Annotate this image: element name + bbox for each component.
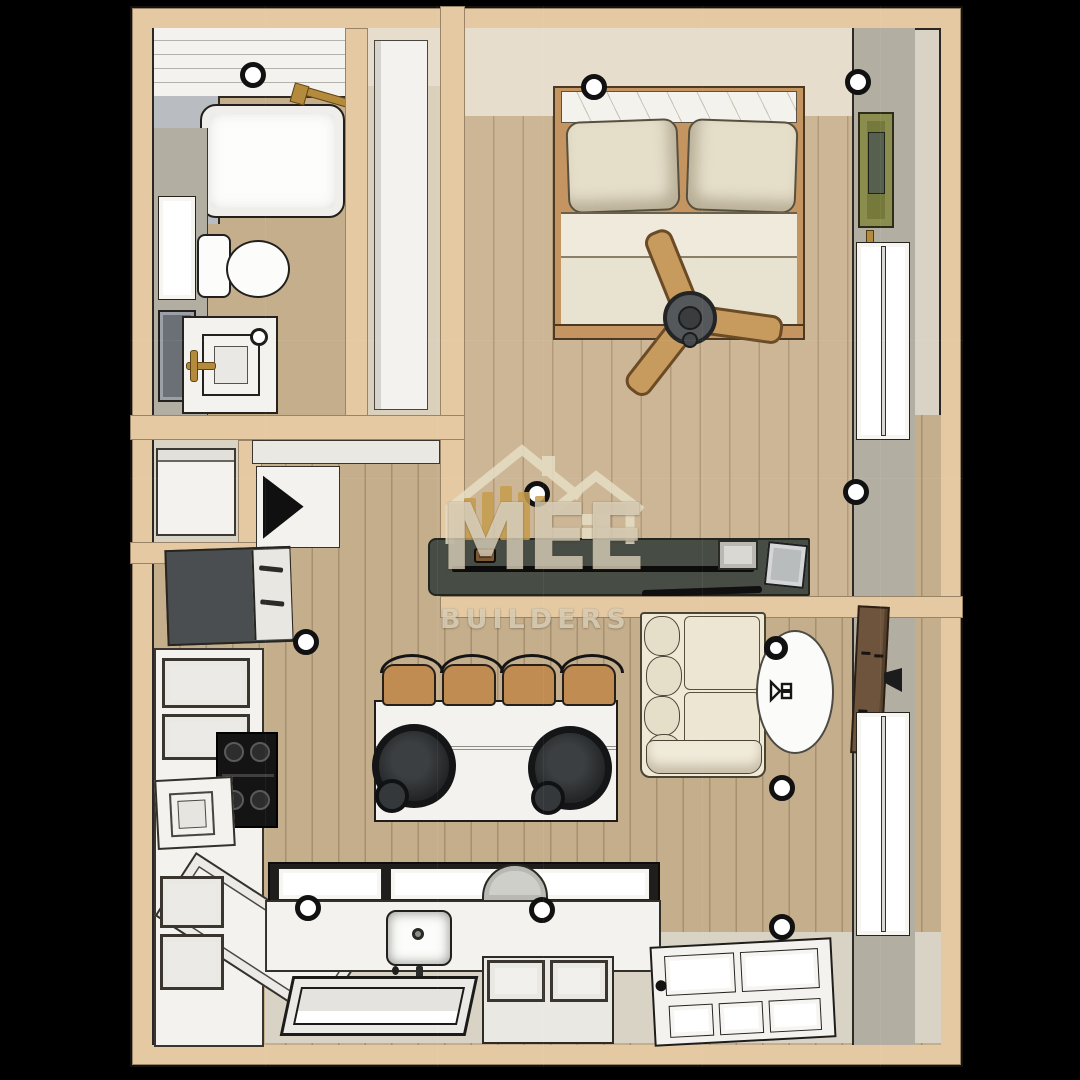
- gold-faucet-handle: [190, 350, 198, 382]
- console-bin: [764, 541, 808, 589]
- recessed-light: [769, 914, 795, 940]
- sofa-bolster-3: [644, 696, 680, 736]
- bedroom-east-window-divider: [881, 246, 886, 436]
- door-pane-bottom-3: [768, 998, 822, 1033]
- render-guide-line: [130, 340, 963, 341]
- bar-stool-2: [442, 664, 496, 706]
- soap-dispenser: [392, 966, 399, 975]
- recessed-light: [293, 629, 319, 655]
- bar-stool-3: [502, 664, 556, 706]
- sofa-armrest: [646, 740, 762, 774]
- door-pane-top-1: [664, 952, 736, 996]
- door-pane-top-2: [740, 948, 820, 992]
- render-guide-line: [702, 6, 703, 1067]
- green-frame-inner-pane: [868, 132, 885, 194]
- bathtub: [200, 104, 345, 218]
- kitchen-window-pane-1: [278, 868, 382, 900]
- bathroom-window: [158, 196, 196, 300]
- bed-pillow-left: [565, 118, 680, 214]
- recessed-light: [845, 69, 871, 95]
- recessed-light: [769, 775, 795, 801]
- render-guide-line: [265, 6, 266, 1067]
- console-basket: [718, 540, 758, 570]
- small-appliance: [154, 776, 236, 850]
- watermark-tagline: BUILDERS: [440, 606, 631, 633]
- entry-door: [650, 937, 837, 1046]
- toilet-bowl: [226, 240, 290, 298]
- left-cabinet-lid-2: [160, 934, 224, 990]
- door-pane-bottom-2: [719, 1001, 765, 1035]
- kitchen-upper-cabinets: [252, 440, 440, 464]
- pendant-light-2: [528, 726, 612, 810]
- watermark: MEE BUILDERS: [430, 436, 668, 654]
- wall-bathroom-south: [130, 415, 465, 440]
- left-cabinet-door-1: [162, 658, 250, 708]
- bench-lid-right: [550, 960, 608, 1002]
- watermark-brand: MEE: [440, 492, 642, 584]
- render-guide-line: [880, 6, 881, 1067]
- burner: [250, 742, 270, 762]
- panel-handle-tick-1: [861, 652, 870, 655]
- recessed-light: [529, 897, 555, 923]
- closet-wardrobe: [374, 40, 428, 410]
- corner-hood-dark-face: [263, 473, 333, 543]
- burner: [250, 790, 270, 810]
- sink-drain: [412, 928, 424, 940]
- door-pane-bottom-1: [669, 1004, 715, 1038]
- recessed-light: [240, 62, 266, 88]
- pendant-canopy: [375, 779, 409, 813]
- south-window: [280, 976, 479, 1036]
- burner: [224, 742, 244, 762]
- sofa-seat-cushion-1: [684, 616, 760, 690]
- sofa-bolster-2: [646, 656, 682, 696]
- wall-bathroom-closet: [345, 28, 368, 418]
- pendant-canopy: [531, 781, 565, 815]
- refrigerator: [164, 546, 293, 646]
- ceiling-fan: [592, 220, 788, 416]
- recessed-light: [843, 479, 869, 505]
- panel-handle-tick-2: [874, 654, 883, 657]
- floor-plan-render: MEE BUILDERS: [0, 0, 1080, 1080]
- recessed-light: [295, 895, 321, 921]
- bar-stool-4: [562, 664, 616, 706]
- bar-stool-1: [382, 664, 436, 706]
- black-bowl: [764, 636, 788, 660]
- refrigerator-doors: [251, 549, 292, 640]
- small-appliance-inner: [169, 791, 215, 837]
- living-east-window-divider: [881, 716, 886, 932]
- recessed-light: [581, 74, 607, 100]
- washer-appliance: [156, 448, 236, 536]
- pendant-light-1: [372, 724, 456, 808]
- table-sculpture: [768, 678, 796, 704]
- bench-lid-left: [487, 960, 545, 1002]
- left-cabinet-lid-1: [160, 876, 224, 928]
